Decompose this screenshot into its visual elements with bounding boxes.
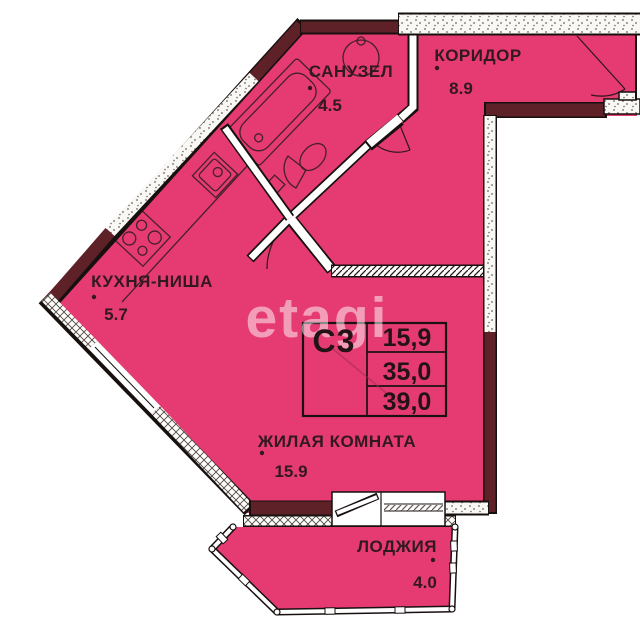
loggia-area: 4.0 [413,573,437,592]
corridor-area: 8.9 [449,79,473,98]
balcony-door-window [332,492,445,526]
living-dot [260,451,264,455]
exterior-wall-top [300,24,640,27]
floor-plan-page: etagi С3 15,9 35,0 39,0 САНУЗЕЛ 4.5 КОРИ… [0,0,640,640]
bathroom-name: САНУЗЕЛ [309,62,393,81]
stamp-total-area: 39,0 [383,388,432,416]
kitchen-area: 5.7 [104,305,128,324]
living-name: ЖИЛАЯ КОМНАТА [257,432,416,451]
loggia-name: ЛОДЖИЯ [357,537,437,556]
stamp-apartment-area: 35,0 [383,358,432,386]
bathroom-dot [308,86,312,90]
corridor-name: КОРИДОР [434,46,521,65]
loggia-dot [431,558,435,562]
stamp-unit-type: С3 [313,323,356,359]
living-area: 15.9 [274,462,307,481]
kitchen-name: КУХНЯ-НИША [91,272,213,291]
stamp-living-area: 15,9 [383,324,432,352]
corridor-dot [435,66,439,70]
floor-plan: etagi С3 15,9 35,0 39,0 САНУЗЕЛ 4.5 КОРИ… [0,0,640,640]
bathroom-area: 4.5 [318,96,342,115]
kitchen-dot [92,295,96,299]
